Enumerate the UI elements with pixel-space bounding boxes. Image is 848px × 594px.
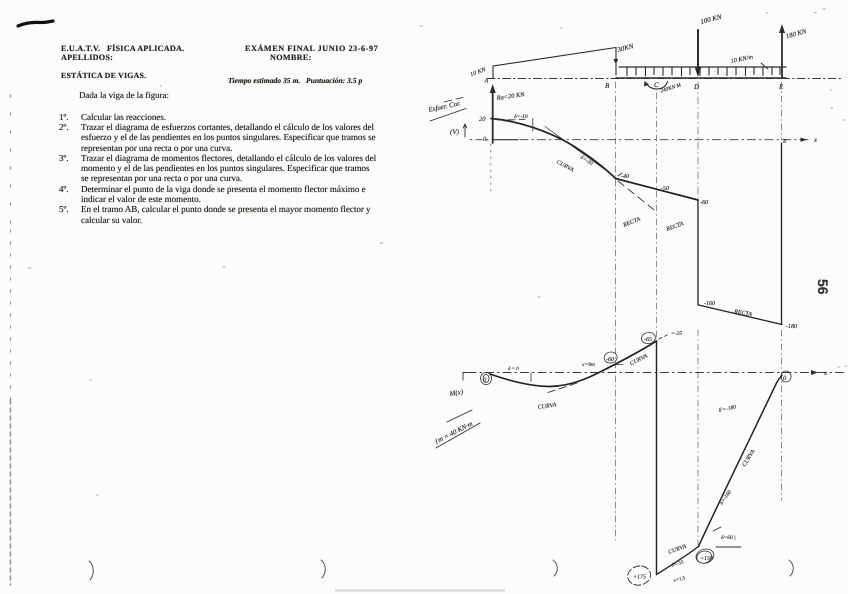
- svg-text:180 KN: 180 KN: [785, 28, 808, 40]
- svg-text:30KN: 30KN: [616, 42, 635, 54]
- svg-text:δ=-30: δ=-30: [579, 155, 594, 168]
- svg-text:10 KN/m: 10 KN/m: [730, 54, 754, 65]
- svg-text:10 KN: 10 KN: [469, 66, 487, 79]
- svg-text:δ′=-180: δ′=-180: [718, 404, 737, 414]
- svg-text:=-25: =-25: [671, 331, 682, 337]
- svg-text:RECTA: RECTA: [665, 221, 685, 233]
- svg-text:-65: -65: [644, 337, 652, 343]
- svg-text:E: E: [782, 139, 787, 145]
- svg-text:-160: -160: [704, 301, 715, 307]
- svg-text:x: x: [823, 369, 828, 377]
- svg-text:B: B: [605, 82, 610, 90]
- svg-text:100 KN: 100 KN: [700, 13, 723, 26]
- svg-text:-40: -40: [621, 174, 629, 180]
- svg-text:+175: +175: [633, 575, 646, 581]
- svg-text:-180: -180: [786, 324, 797, 330]
- svg-text:x=9m: x=9m: [581, 362, 595, 368]
- svg-text:x: x: [813, 136, 818, 144]
- svg-text:240KN·M: 240KN·M: [660, 82, 682, 94]
- svg-text:CURVA: CURVA: [555, 159, 575, 173]
- svg-text:Ra=20 KN: Ra=20 KN: [495, 91, 525, 102]
- svg-text:20: 20: [479, 116, 486, 123]
- svg-text:CURVA: CURVA: [668, 544, 688, 556]
- svg-text:(V): (V): [450, 128, 460, 136]
- svg-text:x=1,5: x=1,5: [672, 575, 686, 584]
- svg-text:E: E: [778, 83, 784, 91]
- svg-text:A: A: [484, 78, 489, 85]
- svg-text:CURVA: CURVA: [537, 402, 557, 411]
- svg-text:-50: -50: [661, 186, 669, 192]
- svg-text:δ = 0: δ = 0: [508, 366, 519, 372]
- svg-text:RECTA: RECTA: [733, 309, 753, 318]
- svg-text:M(x): M(x): [448, 388, 464, 399]
- svg-text:C: C: [654, 81, 659, 89]
- svg-text:ƒm = 40 KN·m: ƒm = 40 KN·m: [433, 420, 474, 446]
- svg-text:δ=-10: δ=-10: [514, 114, 528, 120]
- svg-text:RECTA: RECTA: [622, 216, 642, 229]
- svg-text:0.: 0.: [483, 136, 488, 143]
- svg-text:56: 56: [815, 279, 831, 295]
- svg-text:δ=60 |: δ=60 |: [721, 535, 736, 541]
- svg-text:-60: -60: [700, 200, 708, 206]
